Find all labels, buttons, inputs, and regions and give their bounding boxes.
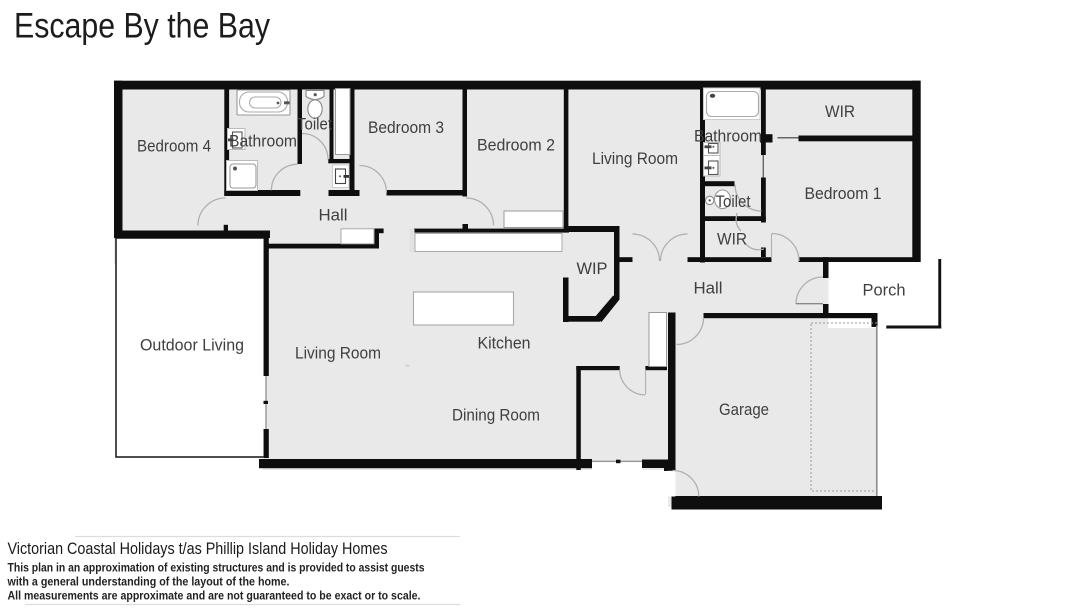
svg-text:Toilet: Toilet (297, 116, 332, 134)
svg-text:Victorian Coastal Holidays t/a: Victorian Coastal Holidays t/as Phillip … (8, 540, 388, 558)
svg-text:Hall: Hall (694, 280, 723, 298)
svg-text:Kitchen: Kitchen (478, 335, 531, 353)
svg-text:WIR: WIR (717, 231, 747, 249)
svg-text:Living Room: Living Room (592, 150, 678, 168)
svg-text:Bedroom 3: Bedroom 3 (368, 119, 444, 137)
svg-text:Bedroom 4: Bedroom 4 (137, 138, 211, 156)
svg-text:Outdoor Living: Outdoor Living (140, 337, 244, 355)
svg-text:WIR: WIR (825, 103, 855, 121)
svg-text:Bedroom 2: Bedroom 2 (477, 137, 555, 155)
svg-text:Bedroom 1: Bedroom 1 (805, 185, 882, 203)
svg-text:Bathroom: Bathroom (694, 128, 762, 146)
svg-text:Bathroom: Bathroom (229, 133, 297, 151)
svg-text:Escape By the Bay: Escape By the Bay (14, 7, 270, 46)
svg-text:Porch: Porch (863, 282, 906, 300)
svg-text:Dining Room: Dining Room (452, 407, 540, 425)
svg-text:with a general understanding o: with a general understanding of the layo… (7, 575, 290, 589)
svg-text:WIP: WIP (577, 260, 608, 278)
svg-text:Living Room: Living Room (295, 345, 381, 363)
svg-text:Garage: Garage (719, 401, 769, 419)
svg-text:This plan in an approximation: This plan in an approximation of existin… (8, 561, 425, 575)
svg-text:Toilet: Toilet (716, 193, 751, 211)
svg-text:Hall: Hall (319, 207, 348, 225)
svg-text:All measurements are approxima: All measurements are approximate and are… (8, 589, 421, 603)
